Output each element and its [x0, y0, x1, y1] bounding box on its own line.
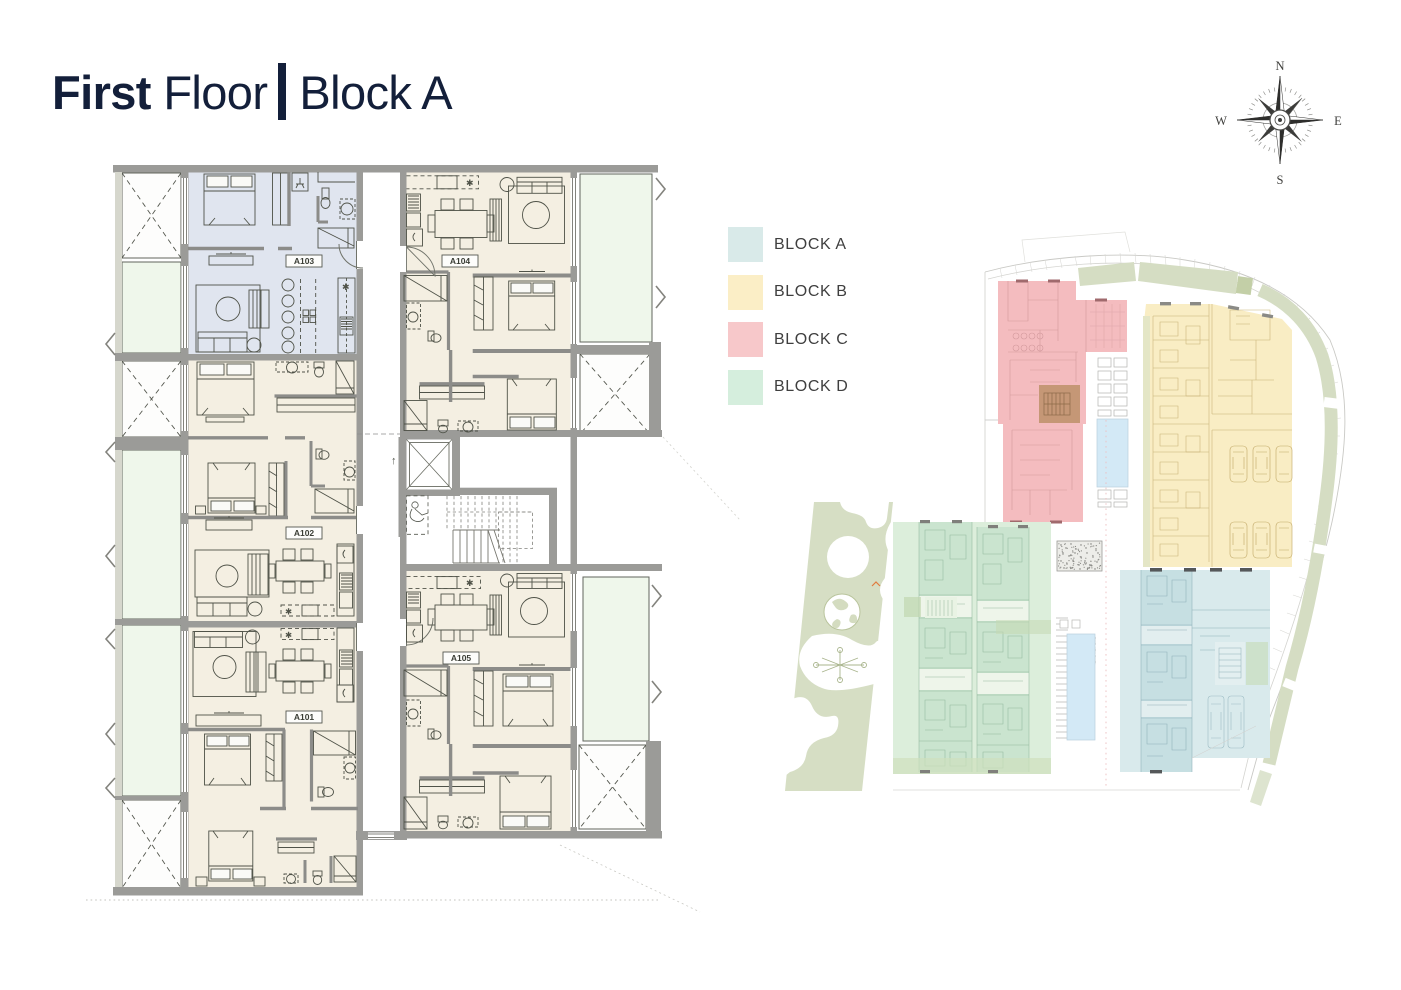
svg-text:E: E	[1334, 114, 1342, 128]
svg-text:W: W	[1215, 114, 1227, 128]
svg-text:S: S	[1277, 173, 1284, 187]
svg-text:A105: A105	[451, 653, 472, 663]
svg-text:N: N	[1275, 59, 1284, 73]
svg-text:↑: ↑	[391, 455, 397, 467]
svg-text:✱: ✱	[466, 578, 474, 588]
svg-text:A103: A103	[294, 256, 315, 266]
svg-text:A102: A102	[294, 528, 315, 538]
svg-text:✱: ✱	[285, 630, 292, 640]
svg-text:A104: A104	[450, 256, 471, 266]
svg-text:A101: A101	[294, 712, 315, 722]
svg-text:✱: ✱	[285, 607, 292, 617]
svg-text:✱: ✱	[342, 282, 350, 292]
svg-text:✱: ✱	[466, 178, 474, 188]
